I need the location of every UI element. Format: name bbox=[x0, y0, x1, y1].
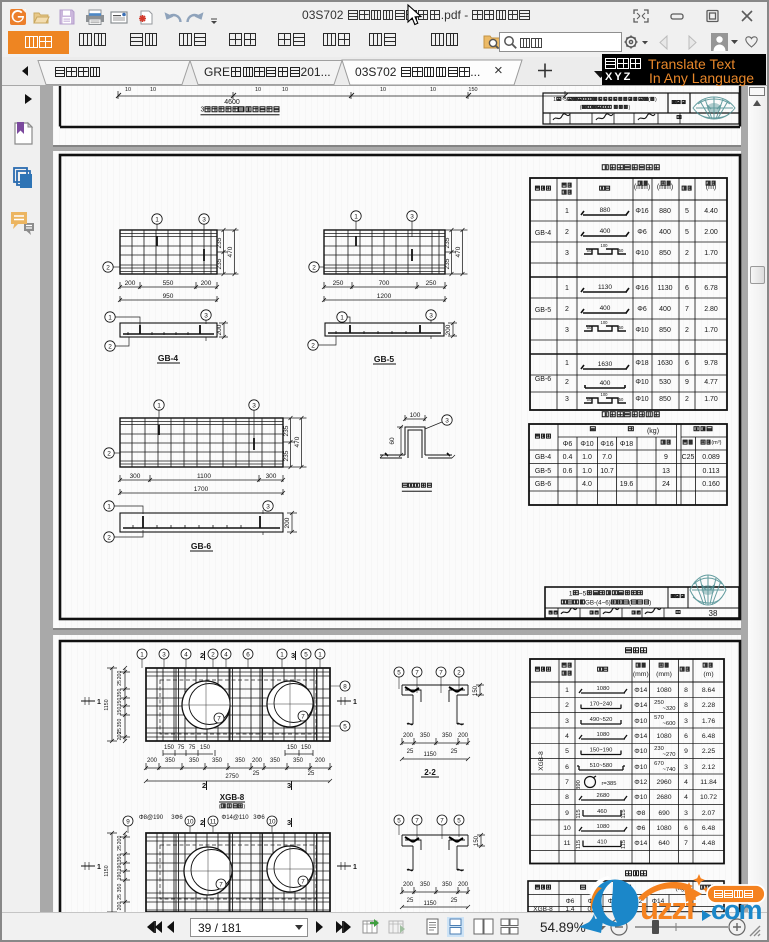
svg-text:Φ12: Φ12 bbox=[634, 779, 647, 786]
svg-text:1: 1 bbox=[565, 208, 569, 215]
svg-text:700: 700 bbox=[379, 280, 390, 287]
svg-text:7: 7 bbox=[301, 714, 305, 721]
svg-text:6.78: 6.78 bbox=[704, 285, 718, 292]
svg-text:1: 1 bbox=[353, 864, 357, 871]
svg-text:190: 190 bbox=[117, 872, 123, 881]
svg-text:Φ14: Φ14 bbox=[634, 733, 647, 740]
svg-text:10: 10 bbox=[150, 87, 156, 93]
svg-text:400: 400 bbox=[659, 306, 671, 313]
svg-text:235: 235 bbox=[216, 258, 223, 269]
svg-text:3: 3 bbox=[429, 313, 433, 320]
svg-text:4: 4 bbox=[684, 794, 688, 801]
svg-text:~320: ~320 bbox=[662, 706, 675, 712]
svg-text:235: 235 bbox=[283, 450, 290, 461]
svg-text:~740: ~740 bbox=[662, 767, 675, 773]
svg-text:75: 75 bbox=[189, 745, 196, 751]
svg-text:150: 150 bbox=[117, 698, 123, 707]
svg-text:2: 2 bbox=[685, 250, 689, 257]
svg-text:400: 400 bbox=[659, 229, 671, 236]
svg-text:0.160: 0.160 bbox=[702, 481, 720, 488]
svg-text:350: 350 bbox=[212, 758, 223, 764]
svg-text:3: 3 bbox=[291, 651, 295, 660]
svg-text:GB-5: GB-5 bbox=[535, 468, 551, 475]
svg-text:300: 300 bbox=[130, 473, 141, 480]
svg-text:3Φ6: 3Φ6 bbox=[253, 815, 265, 821]
svg-text:XGB-8: XGB-8 bbox=[538, 751, 545, 771]
svg-text:4.48: 4.48 bbox=[702, 840, 715, 847]
svg-text:8: 8 bbox=[343, 684, 347, 691]
svg-text:3: 3 bbox=[162, 652, 166, 659]
svg-text:0.113: 0.113 bbox=[703, 468, 720, 475]
svg-text:950: 950 bbox=[163, 293, 174, 300]
svg-text:Φ6: Φ6 bbox=[637, 306, 647, 313]
svg-text:250: 250 bbox=[426, 280, 437, 287]
svg-text:GB-5: GB-5 bbox=[535, 307, 551, 314]
svg-text:10: 10 bbox=[255, 87, 261, 93]
svg-text:200: 200 bbox=[125, 280, 136, 287]
svg-text:1130: 1130 bbox=[598, 284, 612, 291]
svg-text:200: 200 bbox=[117, 836, 123, 845]
svg-text:10: 10 bbox=[268, 819, 276, 826]
svg-text:460: 460 bbox=[597, 809, 607, 815]
svg-text:2.07: 2.07 bbox=[702, 810, 715, 817]
svg-text:10: 10 bbox=[186, 819, 194, 826]
svg-text:350: 350 bbox=[442, 882, 453, 888]
svg-text:8: 8 bbox=[565, 794, 569, 801]
svg-text:5: 5 bbox=[397, 818, 401, 825]
svg-text:C25: C25 bbox=[682, 454, 695, 461]
svg-text:2: 2 bbox=[107, 535, 111, 542]
svg-text:1: 1 bbox=[565, 360, 569, 367]
svg-text:1150: 1150 bbox=[104, 699, 110, 710]
svg-text:9: 9 bbox=[684, 748, 688, 755]
svg-text:6.48: 6.48 bbox=[702, 733, 715, 740]
svg-text:3: 3 bbox=[252, 403, 256, 410]
svg-text:200: 200 bbox=[252, 758, 263, 764]
svg-text:2680: 2680 bbox=[597, 793, 610, 799]
svg-text:150: 150 bbox=[301, 745, 312, 751]
svg-text:200: 200 bbox=[201, 280, 212, 287]
svg-text:Φ18: Φ18 bbox=[620, 441, 633, 448]
svg-text:150: 150 bbox=[117, 707, 123, 716]
svg-text:2: 2 bbox=[565, 306, 569, 313]
svg-text:850: 850 bbox=[659, 250, 671, 257]
svg-text:GB-6: GB-6 bbox=[191, 541, 212, 551]
svg-text:1: 1 bbox=[565, 285, 569, 292]
svg-text:2-2: 2-2 bbox=[424, 768, 436, 777]
svg-text:200: 200 bbox=[403, 733, 414, 739]
svg-text:200: 200 bbox=[403, 882, 414, 888]
svg-text:7: 7 bbox=[439, 670, 443, 677]
svg-text:25: 25 bbox=[117, 845, 123, 851]
svg-text:350: 350 bbox=[420, 733, 431, 739]
svg-text:9: 9 bbox=[664, 454, 668, 461]
svg-text:Φ10: Φ10 bbox=[635, 396, 648, 403]
svg-text:530: 530 bbox=[659, 379, 671, 386]
svg-text:1080: 1080 bbox=[597, 732, 610, 738]
svg-text:8: 8 bbox=[684, 687, 688, 694]
svg-text:GB-5: GB-5 bbox=[374, 354, 395, 364]
svg-text:50: 50 bbox=[587, 248, 592, 253]
svg-text:50: 50 bbox=[619, 325, 624, 330]
svg-text:13: 13 bbox=[662, 468, 670, 475]
svg-text:2: 2 bbox=[202, 781, 206, 790]
svg-text:100: 100 bbox=[601, 392, 609, 397]
svg-text:Φ16: Φ16 bbox=[635, 208, 648, 215]
svg-text:~600: ~600 bbox=[662, 721, 675, 727]
svg-text:Φ18: Φ18 bbox=[635, 360, 648, 367]
svg-text:200: 200 bbox=[117, 671, 123, 680]
svg-text:350: 350 bbox=[420, 882, 431, 888]
svg-text:1: 1 bbox=[155, 217, 159, 224]
svg-text:50: 50 bbox=[587, 325, 592, 330]
svg-text:Φ16: Φ16 bbox=[635, 285, 648, 292]
svg-text:1080: 1080 bbox=[656, 825, 671, 832]
svg-text:7: 7 bbox=[565, 779, 569, 786]
svg-text:7: 7 bbox=[440, 818, 444, 825]
svg-text:1: 1 bbox=[340, 315, 344, 322]
svg-text:60: 60 bbox=[389, 437, 396, 445]
svg-text:4.40: 4.40 bbox=[704, 208, 718, 215]
svg-text:24: 24 bbox=[662, 481, 670, 488]
svg-text:1: 1 bbox=[157, 403, 161, 410]
svg-text:200: 200 bbox=[445, 324, 452, 335]
svg-text:25: 25 bbox=[407, 749, 414, 755]
svg-text:Φ10: Φ10 bbox=[635, 327, 648, 334]
svg-text:100: 100 bbox=[410, 412, 421, 419]
svg-text:8.64: 8.64 bbox=[702, 687, 715, 694]
svg-text:150: 150 bbox=[200, 745, 211, 751]
svg-text:4.77: 4.77 bbox=[704, 379, 718, 386]
svg-text:1.70: 1.70 bbox=[704, 327, 718, 334]
svg-text:2: 2 bbox=[312, 265, 316, 272]
svg-text:200: 200 bbox=[147, 758, 158, 764]
svg-text:1: 1 bbox=[354, 214, 358, 221]
svg-text:6: 6 bbox=[684, 733, 688, 740]
svg-text:200: 200 bbox=[284, 517, 291, 528]
svg-text:3: 3 bbox=[565, 718, 569, 725]
svg-text:1080: 1080 bbox=[597, 824, 610, 830]
svg-text:3: 3 bbox=[684, 718, 688, 725]
svg-text:Φ8@190: Φ8@190 bbox=[139, 815, 164, 821]
svg-text:235: 235 bbox=[216, 237, 223, 248]
svg-text:1: 1 bbox=[565, 687, 569, 694]
svg-text:470: 470 bbox=[227, 246, 234, 257]
svg-text:150~190: 150~190 bbox=[590, 748, 613, 754]
svg-text:5: 5 bbox=[565, 748, 569, 755]
svg-text:25: 25 bbox=[253, 771, 260, 777]
svg-text:1700: 1700 bbox=[194, 486, 209, 493]
svg-text:350: 350 bbox=[235, 758, 246, 764]
svg-text:150: 150 bbox=[474, 835, 480, 846]
svg-text:6: 6 bbox=[685, 285, 689, 292]
svg-text:2: 2 bbox=[108, 344, 112, 351]
svg-text:4600: 4600 bbox=[224, 99, 240, 106]
svg-text:1: 1 bbox=[318, 652, 322, 659]
svg-text:880: 880 bbox=[659, 208, 671, 215]
svg-text:GB-4: GB-4 bbox=[158, 353, 179, 363]
svg-text:200: 200 bbox=[216, 324, 223, 335]
svg-text:Φ14: Φ14 bbox=[634, 687, 647, 694]
svg-text:3: 3 bbox=[684, 810, 688, 817]
svg-text:GB-6: GB-6 bbox=[535, 376, 551, 383]
svg-text:2: 2 bbox=[565, 229, 569, 236]
svg-text:GB-4: GB-4 bbox=[535, 230, 551, 237]
svg-text:10: 10 bbox=[430, 87, 436, 93]
svg-text:0.4: 0.4 bbox=[563, 454, 573, 461]
svg-text:350: 350 bbox=[442, 733, 453, 739]
svg-text:1.70: 1.70 bbox=[704, 396, 718, 403]
svg-text:400: 400 bbox=[600, 305, 611, 312]
svg-text:3: 3 bbox=[684, 764, 688, 771]
svg-text:510~580: 510~580 bbox=[590, 763, 613, 769]
svg-text:235: 235 bbox=[444, 237, 451, 248]
svg-text:25: 25 bbox=[451, 898, 458, 904]
svg-text:1200: 1200 bbox=[377, 293, 392, 300]
svg-text:(mm): (mm) bbox=[656, 671, 672, 678]
svg-text:9: 9 bbox=[565, 810, 569, 817]
svg-text:350: 350 bbox=[270, 758, 281, 764]
svg-text:Φ6: Φ6 bbox=[563, 441, 573, 448]
svg-text:1: 1 bbox=[97, 699, 101, 706]
svg-text:1: 1 bbox=[107, 504, 111, 511]
svg-text:400: 400 bbox=[600, 380, 611, 387]
svg-text:640: 640 bbox=[658, 840, 670, 847]
svg-text:1150: 1150 bbox=[104, 865, 110, 876]
svg-text:300: 300 bbox=[266, 473, 277, 480]
svg-text:150: 150 bbox=[164, 745, 175, 751]
svg-text:2.12: 2.12 bbox=[702, 764, 715, 771]
svg-text:3: 3 bbox=[287, 818, 291, 827]
svg-text:2: 2 bbox=[311, 343, 315, 350]
svg-text:200: 200 bbox=[117, 902, 123, 911]
svg-text:400: 400 bbox=[600, 228, 611, 235]
svg-text:10.7: 10.7 bbox=[600, 468, 614, 475]
svg-text:2: 2 bbox=[200, 818, 204, 827]
svg-text:170~240: 170~240 bbox=[590, 702, 613, 708]
svg-text:150: 150 bbox=[468, 87, 477, 93]
svg-text:1630: 1630 bbox=[657, 360, 673, 367]
svg-text:GB-6: GB-6 bbox=[535, 481, 551, 488]
svg-text:2: 2 bbox=[457, 670, 461, 677]
svg-text:2.28: 2.28 bbox=[702, 702, 715, 709]
svg-text:2: 2 bbox=[200, 651, 204, 660]
svg-text:350: 350 bbox=[293, 758, 304, 764]
svg-text:3: 3 bbox=[204, 313, 208, 320]
svg-text:350: 350 bbox=[117, 689, 123, 698]
svg-text:0.6: 0.6 bbox=[563, 468, 573, 475]
svg-text:7: 7 bbox=[684, 840, 688, 847]
svg-text:9: 9 bbox=[685, 379, 689, 386]
svg-text:200: 200 bbox=[458, 733, 469, 739]
svg-text:25: 25 bbox=[117, 680, 123, 686]
svg-text:(mm): (mm) bbox=[633, 671, 649, 678]
svg-text:Φ10: Φ10 bbox=[634, 794, 647, 801]
svg-text:3: 3 bbox=[410, 214, 414, 221]
svg-text:25: 25 bbox=[117, 894, 123, 900]
svg-text:1: 1 bbox=[280, 652, 284, 659]
svg-text:2: 2 bbox=[107, 451, 111, 458]
svg-text:100: 100 bbox=[601, 320, 609, 325]
svg-text:10: 10 bbox=[380, 87, 386, 93]
svg-text:3: 3 bbox=[565, 396, 569, 403]
svg-text:6: 6 bbox=[685, 360, 689, 367]
svg-text:470: 470 bbox=[294, 436, 301, 447]
svg-text:150: 150 bbox=[473, 685, 479, 696]
svg-text:1150: 1150 bbox=[424, 752, 438, 758]
svg-text:2: 2 bbox=[565, 379, 569, 386]
svg-text:GB-4: GB-4 bbox=[535, 454, 551, 461]
svg-text:1630: 1630 bbox=[598, 361, 613, 368]
svg-text:uzzf: uzzf bbox=[640, 891, 696, 926]
svg-text:Φ14: Φ14 bbox=[634, 840, 647, 847]
svg-text:r=385: r=385 bbox=[602, 781, 617, 787]
svg-text:235: 235 bbox=[283, 425, 290, 436]
svg-text:Φ6: Φ6 bbox=[637, 229, 647, 236]
svg-text:Φ10: Φ10 bbox=[634, 764, 647, 771]
svg-text:1: 1 bbox=[140, 652, 144, 659]
svg-text:6: 6 bbox=[246, 652, 250, 659]
svg-text:1: 1 bbox=[108, 315, 112, 322]
svg-text:10: 10 bbox=[563, 825, 571, 832]
svg-text:Φ14@110: Φ14@110 bbox=[221, 815, 249, 821]
svg-text:Φ10: Φ10 bbox=[634, 718, 647, 725]
svg-text:10.72: 10.72 bbox=[700, 794, 717, 801]
svg-text:235: 235 bbox=[444, 258, 451, 269]
svg-text:2: 2 bbox=[685, 327, 689, 334]
svg-text:75: 75 bbox=[178, 745, 185, 751]
svg-text:115: 115 bbox=[621, 840, 627, 849]
svg-text:1080: 1080 bbox=[597, 686, 610, 692]
svg-text:1: 1 bbox=[353, 699, 357, 706]
svg-text:115: 115 bbox=[576, 809, 582, 818]
svg-text:2680: 2680 bbox=[656, 794, 671, 801]
svg-text:4: 4 bbox=[684, 779, 688, 786]
svg-text:Φ16: Φ16 bbox=[600, 441, 613, 448]
svg-text:Φ10: Φ10 bbox=[635, 250, 648, 257]
svg-text:19.6: 19.6 bbox=[620, 481, 634, 488]
svg-text:150: 150 bbox=[287, 745, 298, 751]
svg-text:690: 690 bbox=[658, 810, 670, 817]
svg-text:8: 8 bbox=[684, 702, 688, 709]
svg-text:7.0: 7.0 bbox=[602, 454, 612, 461]
svg-text:7: 7 bbox=[415, 670, 419, 677]
svg-text:410: 410 bbox=[597, 840, 607, 846]
svg-text:350: 350 bbox=[117, 719, 123, 728]
svg-text:5: 5 bbox=[685, 208, 689, 215]
svg-text:1100: 1100 bbox=[197, 473, 211, 480]
svg-text:11: 11 bbox=[563, 840, 570, 847]
svg-text:(m): (m) bbox=[703, 671, 713, 678]
svg-text:550: 550 bbox=[163, 280, 174, 287]
svg-text:50: 50 bbox=[619, 397, 624, 402]
svg-text:2960: 2960 bbox=[656, 779, 671, 786]
svg-text:5: 5 bbox=[304, 652, 308, 659]
svg-text:50: 50 bbox=[587, 397, 592, 402]
svg-text:1150: 1150 bbox=[424, 901, 438, 907]
svg-text:6: 6 bbox=[684, 825, 688, 832]
svg-text:115: 115 bbox=[576, 840, 582, 849]
svg-text:3: 3 bbox=[202, 217, 206, 224]
svg-text:10: 10 bbox=[125, 87, 131, 93]
svg-text:~270: ~270 bbox=[662, 752, 675, 758]
svg-text:4: 4 bbox=[224, 652, 228, 659]
svg-text:25: 25 bbox=[308, 771, 315, 777]
svg-text:2.80: 2.80 bbox=[704, 306, 718, 313]
svg-text:10: 10 bbox=[282, 87, 288, 93]
svg-text:4: 4 bbox=[565, 733, 569, 740]
svg-text:2: 2 bbox=[565, 702, 569, 709]
svg-text:2: 2 bbox=[211, 652, 215, 659]
svg-text:3Φ6: 3Φ6 bbox=[171, 815, 183, 821]
svg-text:350: 350 bbox=[117, 854, 123, 863]
svg-text:3: 3 bbox=[287, 781, 291, 790]
svg-text:1080: 1080 bbox=[656, 733, 671, 740]
svg-text:200: 200 bbox=[315, 758, 326, 764]
svg-text:1.0: 1.0 bbox=[582, 454, 592, 461]
svg-text:2: 2 bbox=[685, 396, 689, 403]
svg-text:880: 880 bbox=[600, 207, 611, 214]
svg-text:11.84: 11.84 bbox=[700, 779, 717, 786]
svg-text:(kg): (kg) bbox=[647, 428, 659, 435]
svg-text:9: 9 bbox=[126, 819, 130, 826]
svg-text:1.70: 1.70 bbox=[704, 250, 718, 257]
svg-text:7: 7 bbox=[415, 818, 419, 825]
svg-text:9.78: 9.78 bbox=[704, 360, 718, 367]
svg-text:7: 7 bbox=[301, 879, 305, 886]
svg-text:1: 1 bbox=[97, 864, 101, 871]
svg-text:3: 3 bbox=[266, 504, 270, 511]
svg-text:2.25: 2.25 bbox=[702, 748, 715, 755]
svg-text:470: 470 bbox=[455, 246, 462, 257]
svg-text:3: 3 bbox=[445, 418, 449, 425]
svg-text:Φ10: Φ10 bbox=[634, 748, 647, 755]
svg-text:250: 250 bbox=[333, 280, 344, 287]
svg-text:100: 100 bbox=[601, 243, 609, 248]
svg-text:350: 350 bbox=[189, 758, 200, 764]
svg-text:190: 190 bbox=[117, 863, 123, 872]
svg-text:4.0: 4.0 bbox=[582, 481, 592, 488]
svg-text:200: 200 bbox=[117, 732, 123, 741]
svg-text:0.089: 0.089 bbox=[702, 454, 720, 461]
svg-text:5: 5 bbox=[457, 818, 461, 825]
svg-text:850: 850 bbox=[659, 396, 671, 403]
svg-text:25: 25 bbox=[451, 749, 458, 755]
svg-text:5: 5 bbox=[397, 670, 401, 677]
svg-text:490~520: 490~520 bbox=[590, 717, 613, 723]
svg-text:1.76: 1.76 bbox=[702, 718, 715, 725]
svg-text:1.0: 1.0 bbox=[582, 468, 592, 475]
svg-text:Φ6: Φ6 bbox=[636, 825, 645, 832]
svg-text:2750: 2750 bbox=[225, 774, 239, 780]
svg-text:3: 3 bbox=[565, 250, 569, 257]
svg-text:5: 5 bbox=[343, 724, 347, 731]
svg-text:850: 850 bbox=[659, 327, 671, 334]
svg-text:3: 3 bbox=[565, 327, 569, 334]
svg-text:50: 50 bbox=[619, 248, 624, 253]
svg-text:XGB-8: XGB-8 bbox=[220, 793, 245, 802]
svg-text:7: 7 bbox=[219, 882, 223, 889]
svg-text:7: 7 bbox=[217, 716, 221, 723]
svg-text:Φ10: Φ10 bbox=[635, 379, 648, 386]
svg-text:390: 390 bbox=[576, 780, 582, 790]
svg-text:4: 4 bbox=[184, 652, 188, 659]
svg-text:6.48: 6.48 bbox=[702, 825, 715, 832]
svg-text:1130: 1130 bbox=[657, 285, 672, 292]
svg-text:11: 11 bbox=[210, 819, 217, 826]
svg-text:6: 6 bbox=[565, 764, 569, 771]
svg-text:Φ14: Φ14 bbox=[634, 702, 647, 709]
